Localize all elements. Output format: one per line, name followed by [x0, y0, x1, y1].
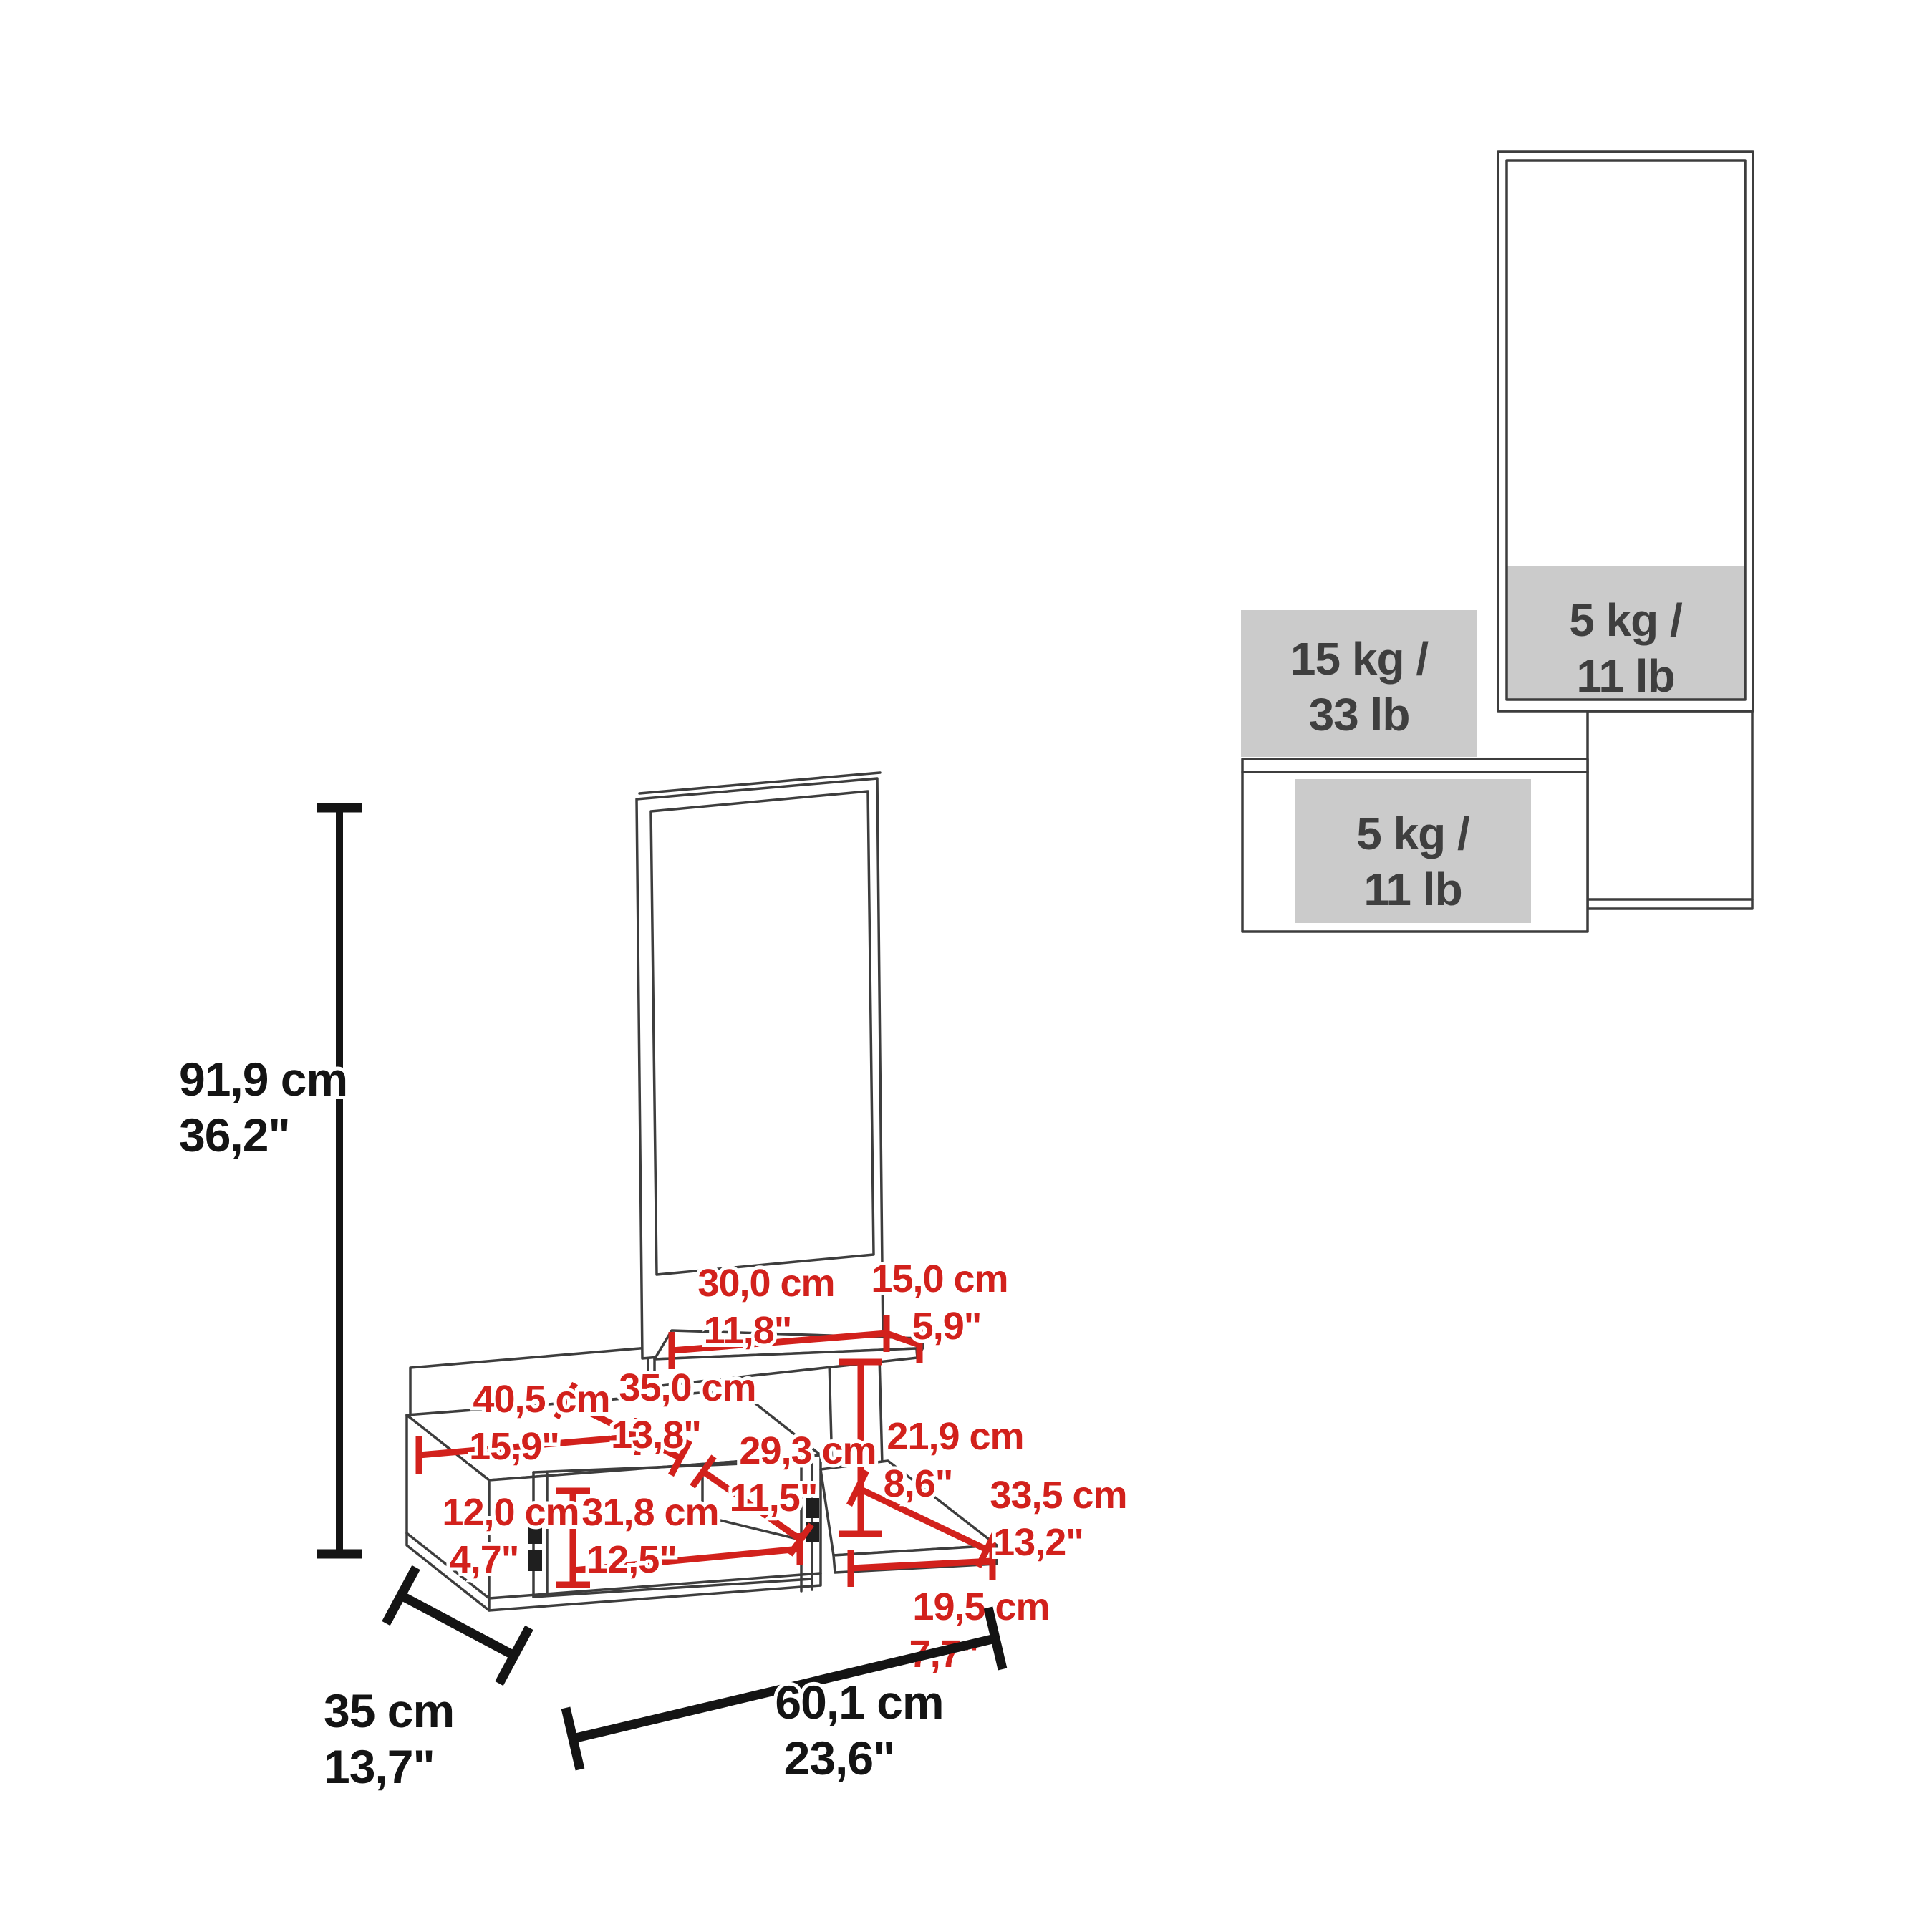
- dim-shelf-right-in: 5,9": [912, 1305, 982, 1348]
- furniture-dimension-diagram: 30,0 cm 11,8" 15,0 cm 5,9" 40,5 cm 15,9"…: [0, 0, 1932, 1932]
- dim-shelf-right-cm: 15,0 cm: [871, 1257, 1008, 1300]
- load-drawer-line1: 5 kg /: [1356, 808, 1470, 859]
- load-mirror-shelf-line2: 11 lb: [1576, 650, 1674, 702]
- dim-interior-width-cm: 31,8 cm: [581, 1491, 718, 1534]
- dim-depth-cm: 35 cm: [324, 1684, 454, 1737]
- red-dimension-labels: 30,0 cm 11,8" 15,0 cm 5,9" 40,5 cm 15,9"…: [442, 1257, 1126, 1676]
- front-support-panel: [1588, 711, 1752, 909]
- dim-top-width-in: 15,9": [469, 1425, 559, 1468]
- dim-top-depth-cm: 35,0 cm: [619, 1366, 755, 1409]
- dim-shelf-left-in: 11,8": [704, 1309, 792, 1352]
- dim-interior-depth-cm: 29,3 cm: [739, 1429, 876, 1472]
- dim-shelf-clearance-cm: 21,9 cm: [887, 1415, 1023, 1458]
- dim-width-in: 23,6": [784, 1731, 895, 1784]
- dim-depth-in: 13,7": [324, 1740, 435, 1793]
- dim-base-depth-in: 13,2": [993, 1521, 1083, 1564]
- dim-base-width-cm: 19,5 cm: [912, 1585, 1049, 1628]
- dim-shelf-left-cm: 30,0 cm: [697, 1262, 834, 1305]
- dim-top-width-cm: 40,5 cm: [473, 1378, 609, 1421]
- isometric-view: 30,0 cm 11,8" 15,0 cm 5,9" 40,5 cm 15,9"…: [179, 773, 1127, 1793]
- dim-interior-depth-in: 11,5": [730, 1477, 818, 1520]
- dim-interior-width-in: 12,5": [586, 1538, 677, 1581]
- dim-door-height-cm: 12,0 cm: [442, 1491, 579, 1534]
- dim-base-depth-cm: 33,5 cm: [990, 1474, 1126, 1517]
- load-mirror-shelf-line1: 5 kg /: [1569, 594, 1683, 646]
- dim-width-cm: 60,1 cm: [775, 1676, 943, 1729]
- dim-door-height-in: 4,7": [450, 1538, 519, 1581]
- load-capacity-view: 15 kg / 33 lb 5 kg / 11 lb 5 kg / 11 lb: [1241, 152, 1753, 932]
- mirror-glass: [651, 791, 874, 1275]
- load-drawer-line2: 11 lb: [1363, 864, 1462, 915]
- load-top-surface-line2: 33 lb: [1309, 689, 1410, 740]
- dim-top-depth-in: 13,8": [611, 1414, 701, 1457]
- dim-height-cm: 91,9 cm: [179, 1053, 347, 1106]
- dim-shelf-clearance-in: 8,6": [884, 1462, 953, 1505]
- dim-height-in: 36,2": [179, 1109, 290, 1161]
- load-top-surface-line1: 15 kg /: [1290, 633, 1429, 685]
